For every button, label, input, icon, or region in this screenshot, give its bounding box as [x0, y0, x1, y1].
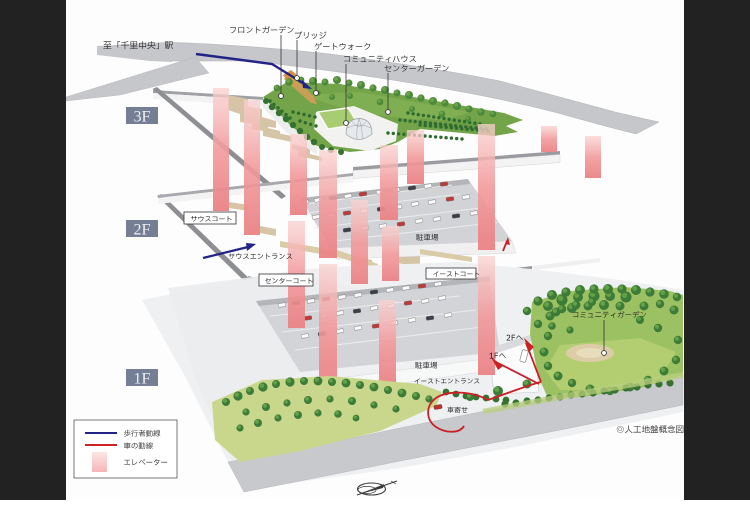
svg-text:2F: 2F	[134, 222, 151, 239]
svg-text:3F: 3F	[134, 109, 151, 126]
svg-text:1F: 1F	[134, 371, 151, 388]
